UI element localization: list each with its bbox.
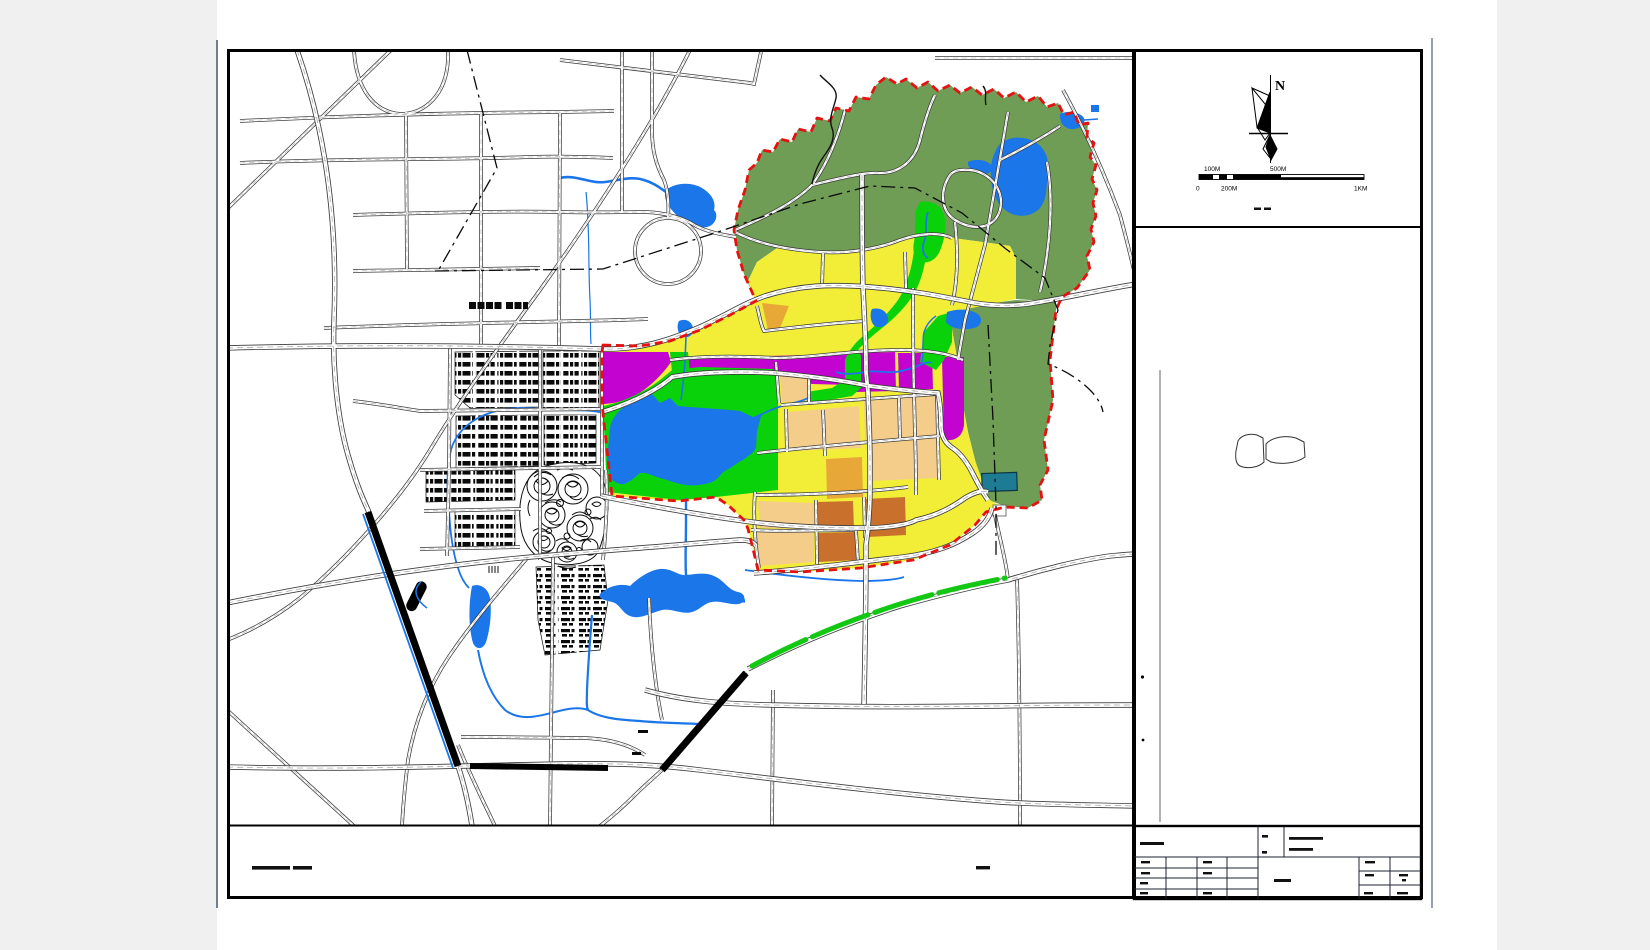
svg-text:100M: 100M (1204, 166, 1220, 173)
svg-text:0: 0 (1196, 186, 1200, 193)
svg-text:N: N (1275, 79, 1285, 94)
svg-text:200M: 200M (1221, 186, 1237, 193)
svg-text:1KM: 1KM (1354, 186, 1367, 193)
svg-text:500M: 500M (1270, 166, 1286, 173)
